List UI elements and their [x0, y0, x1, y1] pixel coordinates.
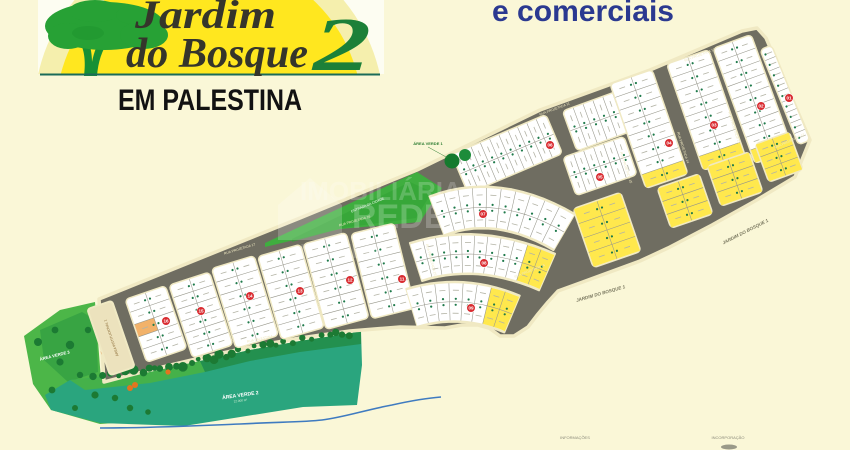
- svg-text:07: 07: [480, 212, 486, 217]
- svg-text:do Bosque: do Bosque: [126, 31, 308, 77]
- svg-text:INFORMAÇÕES: INFORMAÇÕES: [560, 435, 590, 440]
- svg-text:04: 04: [666, 141, 672, 146]
- svg-text:02: 02: [758, 104, 764, 109]
- svg-text:EM PALESTINA: EM PALESTINA: [118, 84, 302, 117]
- svg-text:INCORPORAÇÃO: INCORPORAÇÃO: [712, 435, 745, 440]
- svg-text:08: 08: [481, 261, 487, 266]
- svg-text:IMÓVEIS: IMÓVEIS: [300, 239, 383, 263]
- svg-text:01: 01: [786, 96, 792, 101]
- svg-text:16: 16: [163, 319, 169, 324]
- svg-text:14: 14: [247, 294, 253, 299]
- svg-text:15: 15: [198, 309, 204, 314]
- svg-text:13: 13: [297, 289, 303, 294]
- svg-text:2: 2: [311, 3, 371, 87]
- svg-text:12: 12: [347, 278, 353, 283]
- svg-text:11: 11: [400, 277, 405, 282]
- svg-text:09: 09: [468, 306, 474, 311]
- svg-text:e comerciais: e comerciais: [492, 0, 674, 28]
- svg-text:REDE: REDE: [352, 198, 446, 236]
- svg-text:03: 03: [711, 123, 717, 128]
- svg-text:ÁREA VERDE 1: ÁREA VERDE 1: [413, 141, 443, 146]
- svg-text:06: 06: [547, 143, 553, 148]
- svg-text:05: 05: [597, 175, 603, 180]
